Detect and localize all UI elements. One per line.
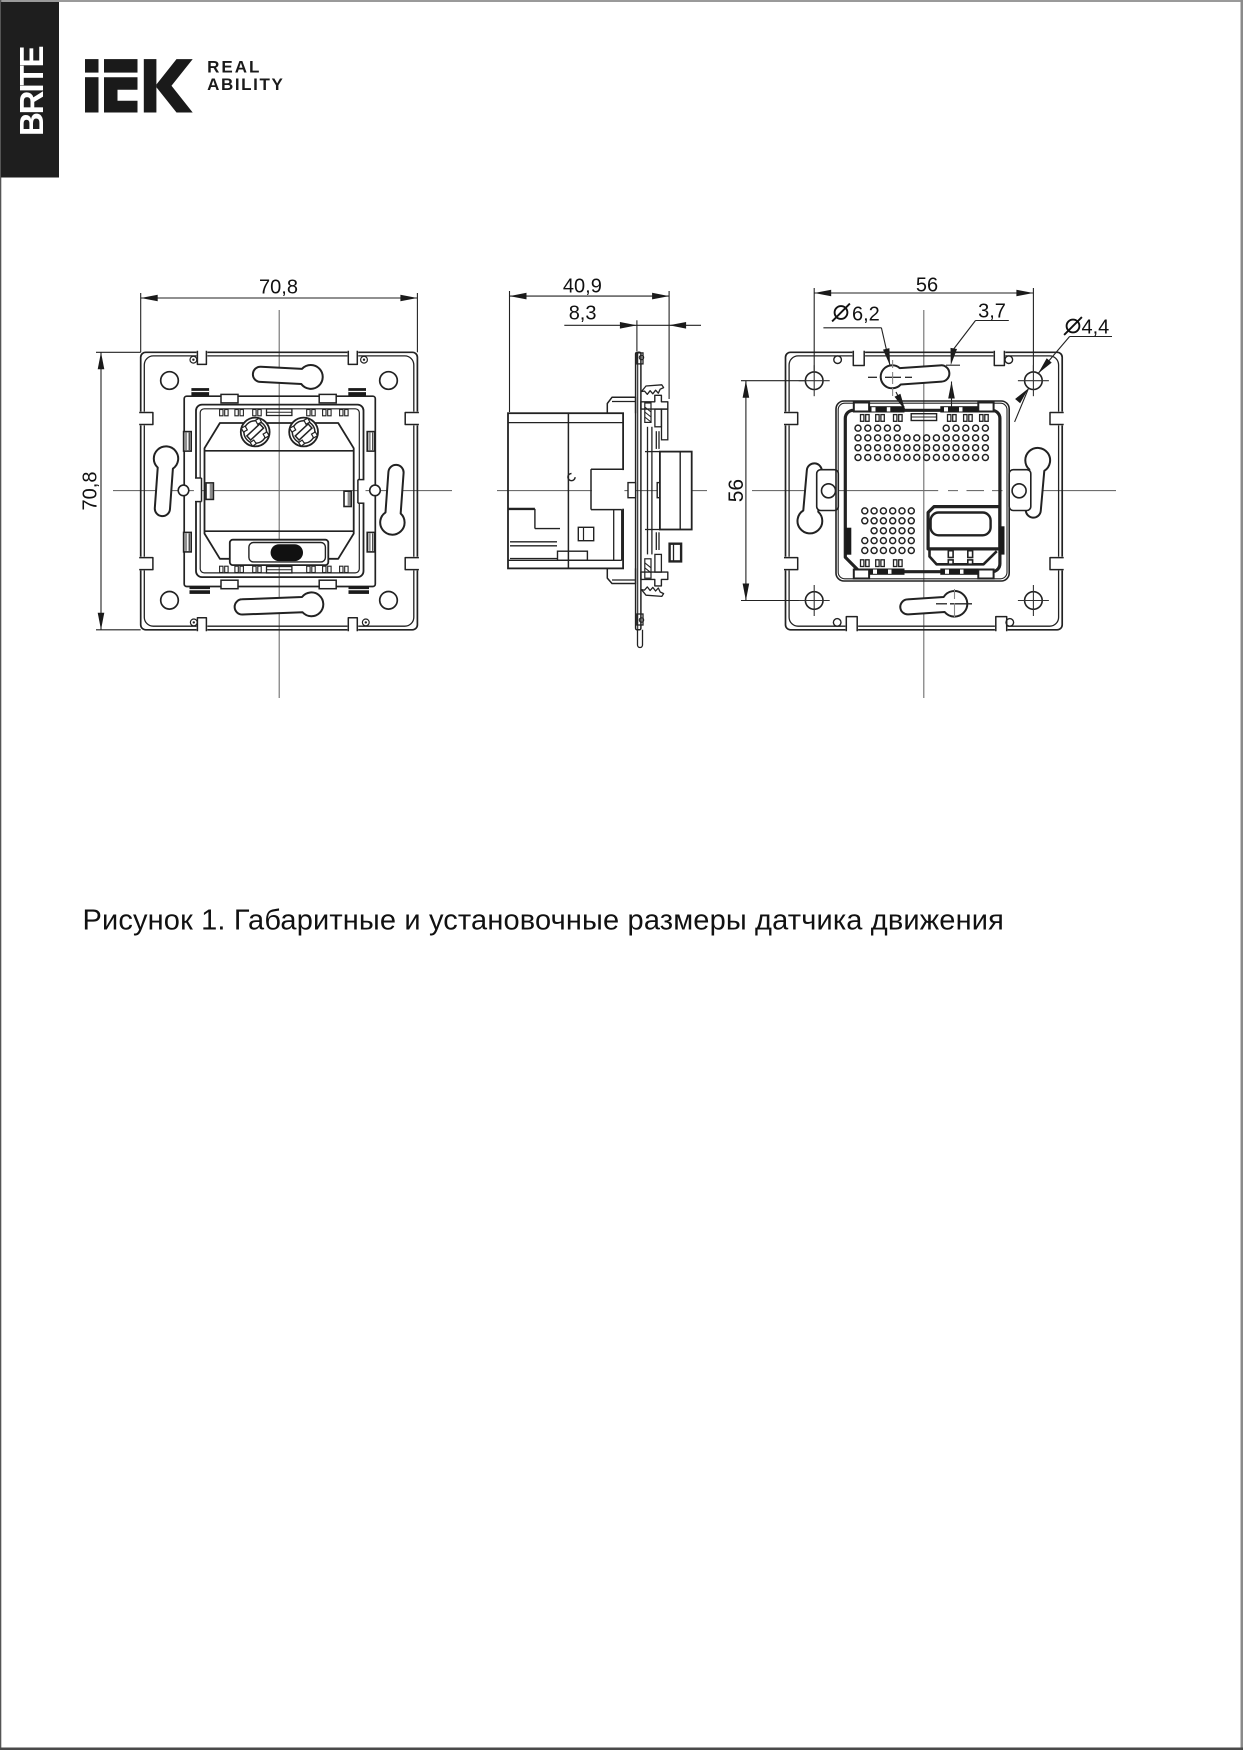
svg-text:Рисунок 1. Габаритные и устано: Рисунок 1. Габаритные и установочные раз… [83, 905, 1004, 937]
svg-text:REAL: REAL [207, 58, 261, 77]
svg-text:70,8: 70,8 [79, 472, 101, 511]
svg-text:ABILITY: ABILITY [207, 75, 284, 94]
svg-text:40,9: 40,9 [563, 275, 602, 297]
svg-text:6,2: 6,2 [852, 304, 880, 326]
svg-text:8,3: 8,3 [569, 303, 597, 325]
svg-text:BRITE: BRITE [13, 46, 50, 136]
svg-text:4,4: 4,4 [1082, 317, 1110, 339]
svg-text:56: 56 [725, 479, 748, 502]
svg-text:3,7: 3,7 [978, 301, 1006, 323]
svg-text:70,8: 70,8 [259, 277, 298, 299]
svg-text:56: 56 [916, 274, 938, 296]
